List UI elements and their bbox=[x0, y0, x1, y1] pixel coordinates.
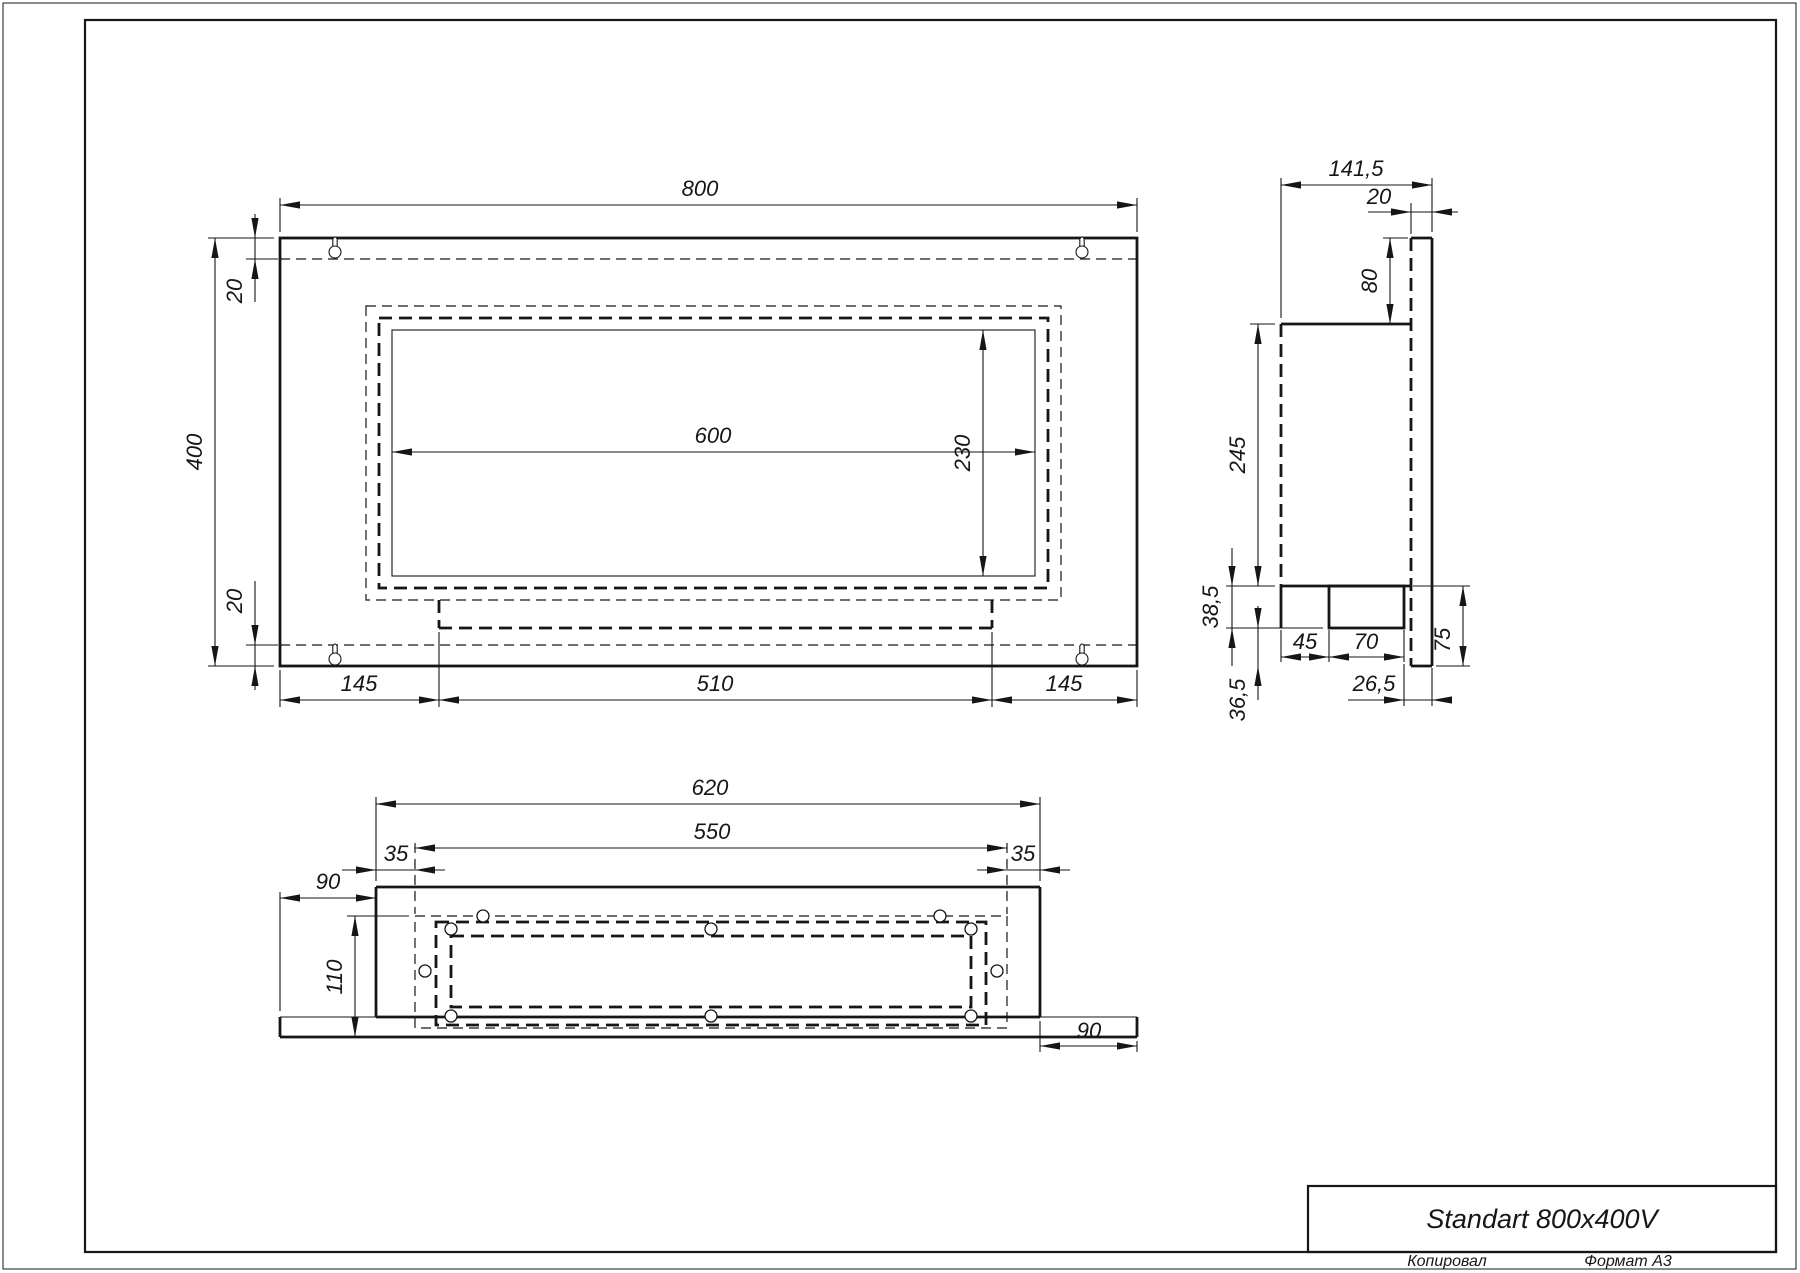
dimension-arrow bbox=[251, 625, 258, 645]
dimension-arrow bbox=[419, 696, 439, 703]
dimension-label: 230 bbox=[950, 434, 975, 472]
opening-rect bbox=[392, 330, 1035, 576]
outline-rect bbox=[1329, 586, 1404, 628]
screw-hole-icon bbox=[477, 910, 489, 922]
screw-hole-icon bbox=[965, 1010, 977, 1022]
dimension-arrow bbox=[1228, 566, 1235, 586]
drawing-sheet: 8004002020600230145510145141,5208024538,… bbox=[0, 0, 1800, 1273]
dimension-arrow bbox=[356, 894, 376, 901]
dimension-lines bbox=[215, 185, 1463, 1046]
dimension-arrow bbox=[1117, 1042, 1137, 1049]
dimension-arrow bbox=[987, 866, 1007, 873]
dimension-labels: 8004002020600230145510145141,5208024538,… bbox=[182, 156, 1455, 1043]
dimension-arrow bbox=[1281, 181, 1301, 188]
dimension-arrow bbox=[351, 916, 358, 936]
screw-hole-icon bbox=[934, 910, 946, 922]
dimension-label: 550 bbox=[694, 819, 731, 844]
keyhole-circle-icon bbox=[329, 653, 341, 665]
dimension-arrow bbox=[1254, 608, 1261, 628]
dimension-arrow bbox=[1281, 653, 1301, 660]
page-border bbox=[3, 3, 1796, 1269]
dimension-arrow bbox=[280, 894, 300, 901]
dimension-arrow bbox=[1228, 628, 1235, 648]
dimension-label: 20 bbox=[222, 588, 247, 614]
footer-format-label: Формат А3 bbox=[1584, 1253, 1672, 1270]
dimension-arrow bbox=[1254, 666, 1261, 686]
dimension-arrow bbox=[1254, 324, 1261, 344]
dimension-arrow bbox=[1384, 653, 1404, 660]
dimension-arrow bbox=[972, 696, 992, 703]
screw-hole-icon bbox=[991, 965, 1003, 977]
dimension-arrow bbox=[1040, 866, 1060, 873]
dimension-label: 20 bbox=[1366, 184, 1392, 209]
dimension-arrow bbox=[987, 844, 1007, 851]
dimension-label: 800 bbox=[682, 176, 719, 201]
dimension-label: 145 bbox=[1046, 671, 1083, 696]
screw-hole-icon bbox=[705, 1010, 717, 1022]
dimension-label: 70 bbox=[1354, 629, 1379, 654]
screw-hole-icon bbox=[445, 923, 457, 935]
hidden-rect bbox=[451, 936, 971, 1007]
dimension-arrow bbox=[979, 330, 986, 350]
dimension-label: 620 bbox=[692, 775, 729, 800]
screw-hole-icon bbox=[965, 923, 977, 935]
dimension-arrow bbox=[439, 696, 459, 703]
dimension-arrow bbox=[1412, 181, 1432, 188]
dimension-label: 400 bbox=[182, 433, 207, 470]
dimension-arrow bbox=[1386, 238, 1393, 258]
keyhole-circle-icon bbox=[1076, 246, 1088, 258]
dimension-arrow bbox=[1432, 696, 1452, 703]
dimension-arrow bbox=[251, 259, 258, 279]
dimension-arrow bbox=[211, 238, 218, 258]
dimension-arrow bbox=[280, 201, 300, 208]
sheet-frame bbox=[3, 3, 1796, 1269]
dimension-arrow bbox=[1020, 800, 1040, 807]
screw-hole-icon bbox=[705, 923, 717, 935]
object-lines bbox=[280, 238, 1432, 1037]
dimension-label: 145 bbox=[341, 671, 378, 696]
title-block-title: Standart 800x400V bbox=[1426, 1204, 1660, 1234]
dimension-arrow bbox=[1117, 696, 1137, 703]
dimension-label: 75 bbox=[1430, 627, 1455, 652]
dimension-arrow bbox=[211, 646, 218, 666]
dimension-arrow bbox=[251, 666, 258, 686]
dimension-arrow bbox=[351, 1017, 358, 1037]
dimension-label: 110 bbox=[322, 959, 347, 995]
dimension-arrow bbox=[356, 866, 376, 873]
hole-symbols bbox=[329, 237, 1088, 1022]
dimension-label: 600 bbox=[695, 423, 732, 448]
hidden-lines bbox=[280, 238, 1411, 1028]
dimension-arrow bbox=[251, 218, 258, 238]
keyhole-circle-icon bbox=[1076, 653, 1088, 665]
dimension-label: 80 bbox=[1357, 268, 1382, 293]
dimension-arrow bbox=[979, 556, 986, 576]
hidden-rect bbox=[379, 318, 1048, 588]
dimension-arrow bbox=[1254, 566, 1261, 586]
dimension-arrow bbox=[1459, 586, 1466, 606]
dimension-arrow bbox=[1309, 653, 1329, 660]
dimension-label: 20 bbox=[222, 278, 247, 304]
dimension-arrow bbox=[1386, 304, 1393, 324]
dimension-label: 90 bbox=[316, 869, 341, 894]
dimension-label: 35 bbox=[1011, 841, 1036, 866]
dimension-label: 90 bbox=[1077, 1018, 1102, 1043]
dimension-label: 38,5 bbox=[1198, 585, 1223, 629]
dimension-arrow bbox=[415, 844, 435, 851]
dimension-arrow bbox=[280, 696, 300, 703]
dimension-arrow bbox=[1040, 1042, 1060, 1049]
dimension-arrow bbox=[415, 866, 435, 873]
technical-drawing: 8004002020600230145510145141,5208024538,… bbox=[0, 0, 1800, 1273]
dimension-label: 45 bbox=[1293, 629, 1318, 654]
keyhole-circle-icon bbox=[329, 246, 341, 258]
dimension-label: 26,5 bbox=[1352, 671, 1397, 696]
dimension-arrow bbox=[392, 448, 412, 455]
dimension-arrow bbox=[1015, 448, 1035, 455]
dimension-arrow bbox=[376, 800, 396, 807]
dimension-arrow bbox=[1117, 201, 1137, 208]
dimension-arrow bbox=[1391, 208, 1411, 215]
dimension-label: 245 bbox=[1225, 436, 1250, 474]
footer-copied-label: Копировал bbox=[1407, 1253, 1487, 1270]
dimension-arrow bbox=[992, 696, 1012, 703]
screw-hole-icon bbox=[419, 965, 431, 977]
dimension-arrows bbox=[211, 181, 1466, 1049]
dimension-label: 141,5 bbox=[1328, 156, 1384, 181]
dimension-arrow bbox=[1459, 646, 1466, 666]
screw-hole-icon bbox=[445, 1010, 457, 1022]
dimension-label: 510 bbox=[697, 671, 734, 696]
dimension-label: 36,5 bbox=[1225, 678, 1250, 722]
dimension-arrow bbox=[1432, 208, 1452, 215]
dimension-label: 35 bbox=[384, 841, 409, 866]
dimension-arrow bbox=[1329, 653, 1349, 660]
dimension-arrow bbox=[1384, 696, 1404, 703]
